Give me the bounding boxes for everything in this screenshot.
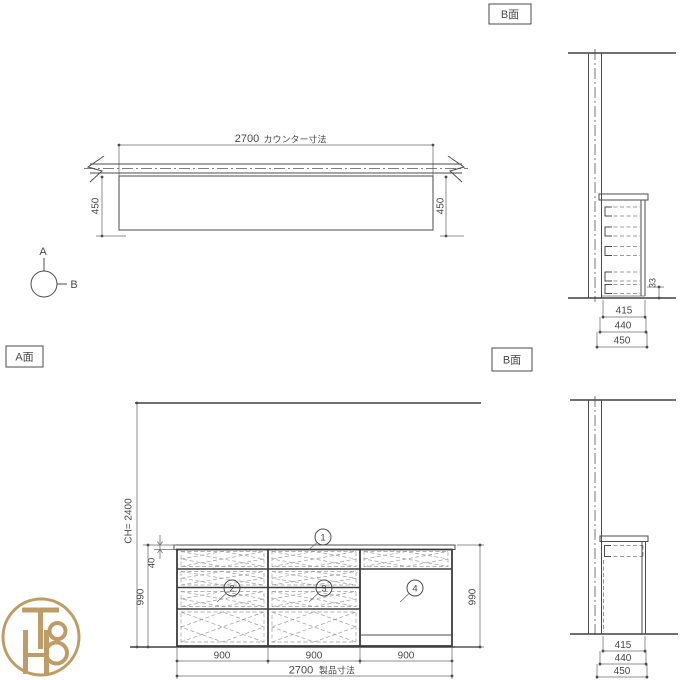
dim-bay-1: 900 [214, 651, 231, 662]
orientation-circle [31, 271, 57, 297]
elevation-a: CH= 2400 1 2 3 4 [124, 403, 484, 679]
dim-height-right: 990 [468, 588, 479, 605]
dim-inner-depth-top: 415 [616, 306, 633, 317]
dim-total-width-note: 製品寸法 [319, 664, 355, 675]
section-b-top: 33 415 440 450 [568, 49, 676, 349]
b-face-label-top: B面 [489, 4, 531, 24]
callout-1: 1 [309, 529, 331, 550]
drawer-symbols [605, 207, 640, 294]
a-face-label: A面 [6, 346, 43, 367]
dim-body-depth-bottom: 440 [615, 653, 632, 664]
svg-text:1: 1 [320, 533, 325, 544]
drawing-canvas: 2700 カウンター寸法 450 450 A B B面 A面 B面 [0, 0, 680, 680]
svg-text:B面: B面 [503, 354, 521, 366]
plan-depth-right: 450 [436, 197, 447, 214]
dim-total-depth-bottom: 450 [614, 666, 631, 677]
callout-2: 2 [217, 580, 240, 602]
dim-total-width-value: 2700 [289, 664, 313, 676]
b-face-label-bottom: B面 [492, 348, 532, 371]
svg-text:B面: B面 [501, 9, 519, 21]
svg-text:3: 3 [321, 584, 326, 595]
cabinet-body [177, 550, 452, 647]
section-b-bottom: 415 440 450 [570, 396, 678, 679]
plan-total-width-note: カウンター寸法 [263, 133, 326, 144]
dim-ceiling-height: CH= 2400 [124, 498, 135, 544]
counter-section [599, 194, 648, 200]
technical-drawing: 2700 カウンター寸法 450 450 A B B面 A面 B面 [0, 0, 680, 680]
svg-text:4: 4 [412, 584, 417, 595]
drawer-symbol [605, 546, 644, 557]
dim-height-left: 990 [136, 588, 147, 605]
callout-3: 3 [309, 580, 332, 602]
dim-inner-depth-bottom: 415 [615, 640, 632, 651]
cabinet-footprint [119, 176, 433, 230]
counter-section [600, 536, 648, 542]
dim-bay-3: 900 [398, 651, 415, 662]
plan-depth-left: 450 [91, 197, 102, 214]
dim-bay-2: 900 [306, 651, 323, 662]
plan-view: 2700 カウンター寸法 450 450 [84, 133, 468, 236]
dim-total-depth-top: 450 [614, 336, 631, 347]
dim-body-depth-top: 440 [615, 321, 632, 332]
logo-monogram-th8: TH8 [3, 599, 79, 675]
svg-text:2: 2 [229, 584, 234, 595]
dim-base-gap: 33 [647, 278, 657, 288]
callout-4: 4 [400, 580, 423, 602]
orientation-marker: A B [31, 246, 78, 297]
plan-total-width-value: 2700 [235, 133, 259, 145]
orientation-label-a: A [39, 246, 47, 258]
orientation-label-b: B [70, 279, 77, 291]
svg-text:A面: A面 [15, 351, 33, 363]
break-symbol-right [448, 156, 464, 182]
